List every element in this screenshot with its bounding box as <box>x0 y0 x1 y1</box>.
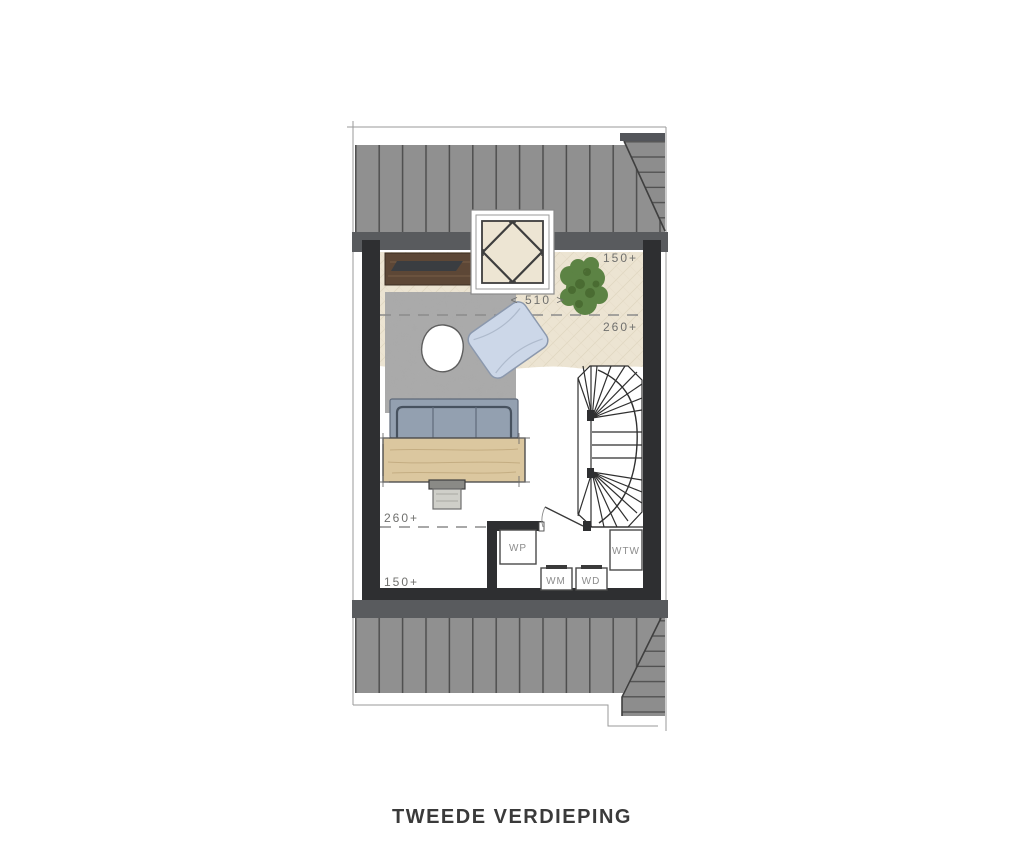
skylight <box>471 210 554 294</box>
height-label-260-top: 260+ <box>603 320 638 334</box>
height-label-150-top: 150+ <box>603 251 638 265</box>
desk-chair <box>429 480 465 509</box>
floor-title: TWEEDE VERDIEPING <box>0 806 1024 829</box>
pouf <box>422 325 464 372</box>
wall-left <box>362 240 380 600</box>
roof-bottom-gutter <box>352 600 668 618</box>
width-label-510: < 510 > <box>511 293 566 307</box>
heat-recovery-label: WTW <box>612 546 640 557</box>
table <box>378 433 530 487</box>
roof-bottom <box>352 600 668 716</box>
heat-pump-label: WP <box>509 543 527 554</box>
washer-label: WM <box>546 576 566 587</box>
sofa <box>390 399 518 438</box>
spiral-staircase <box>578 366 642 527</box>
roof-top-hip-ridge <box>620 133 665 141</box>
dryer-label: WD <box>582 576 601 587</box>
wall-bottom <box>362 588 661 600</box>
height-label-260-bottom: 260+ <box>384 511 419 525</box>
wall-right <box>643 240 661 600</box>
roof-bottom-plane <box>355 618 661 693</box>
floor-plan-page: WP WTW WM WD 150+ < 510 > 260+ 260+ 150+… <box>0 0 1024 853</box>
tv-cabinet <box>385 253 475 285</box>
tech-room-wall-left <box>487 521 497 600</box>
tech-room-wall-stub <box>583 521 591 531</box>
tv <box>391 261 463 271</box>
height-label-150-bottom: 150+ <box>384 575 419 589</box>
floor-plan-drawing: WP WTW WM WD 150+ < 510 > 260+ 260+ 150+ <box>0 0 1024 853</box>
